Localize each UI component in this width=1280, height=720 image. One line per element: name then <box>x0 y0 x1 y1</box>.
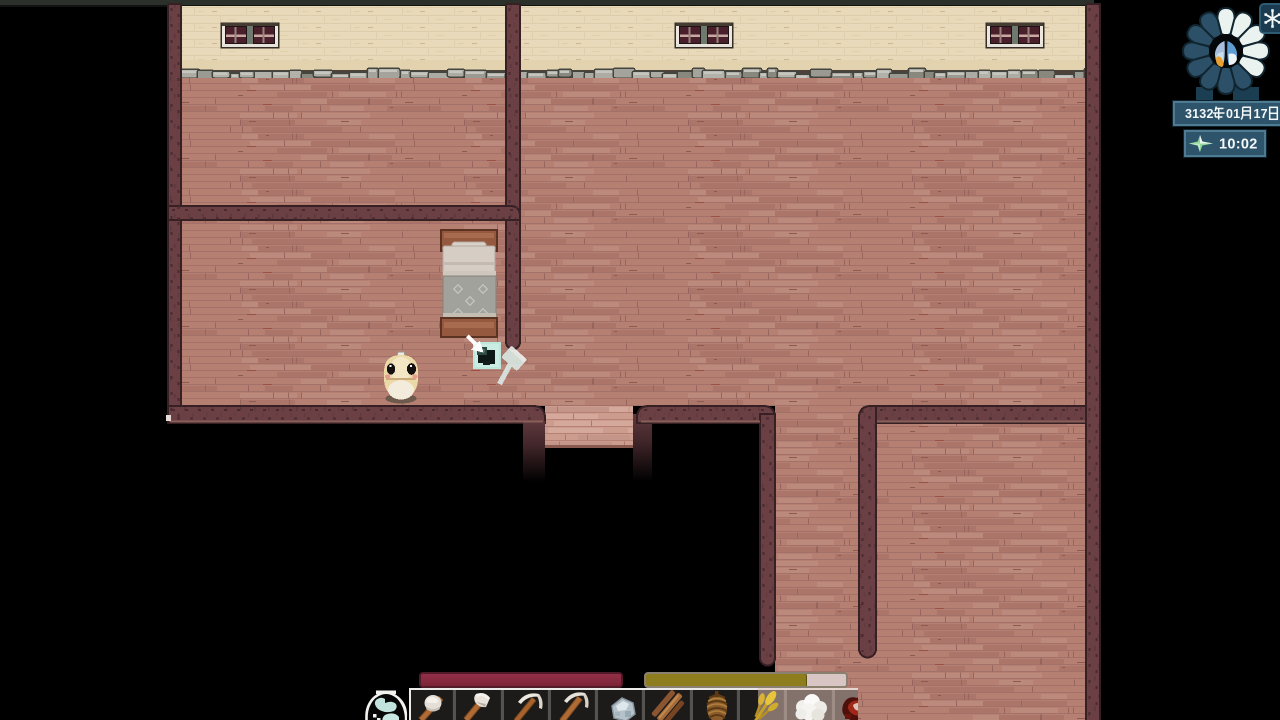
svg-text:17: 17 <box>1254 107 1268 121</box>
svg-text:3132: 3132 <box>1185 107 1214 121</box>
svg-text:01: 01 <box>1226 107 1240 121</box>
svg-text:10:02: 10:02 <box>1219 137 1258 153</box>
